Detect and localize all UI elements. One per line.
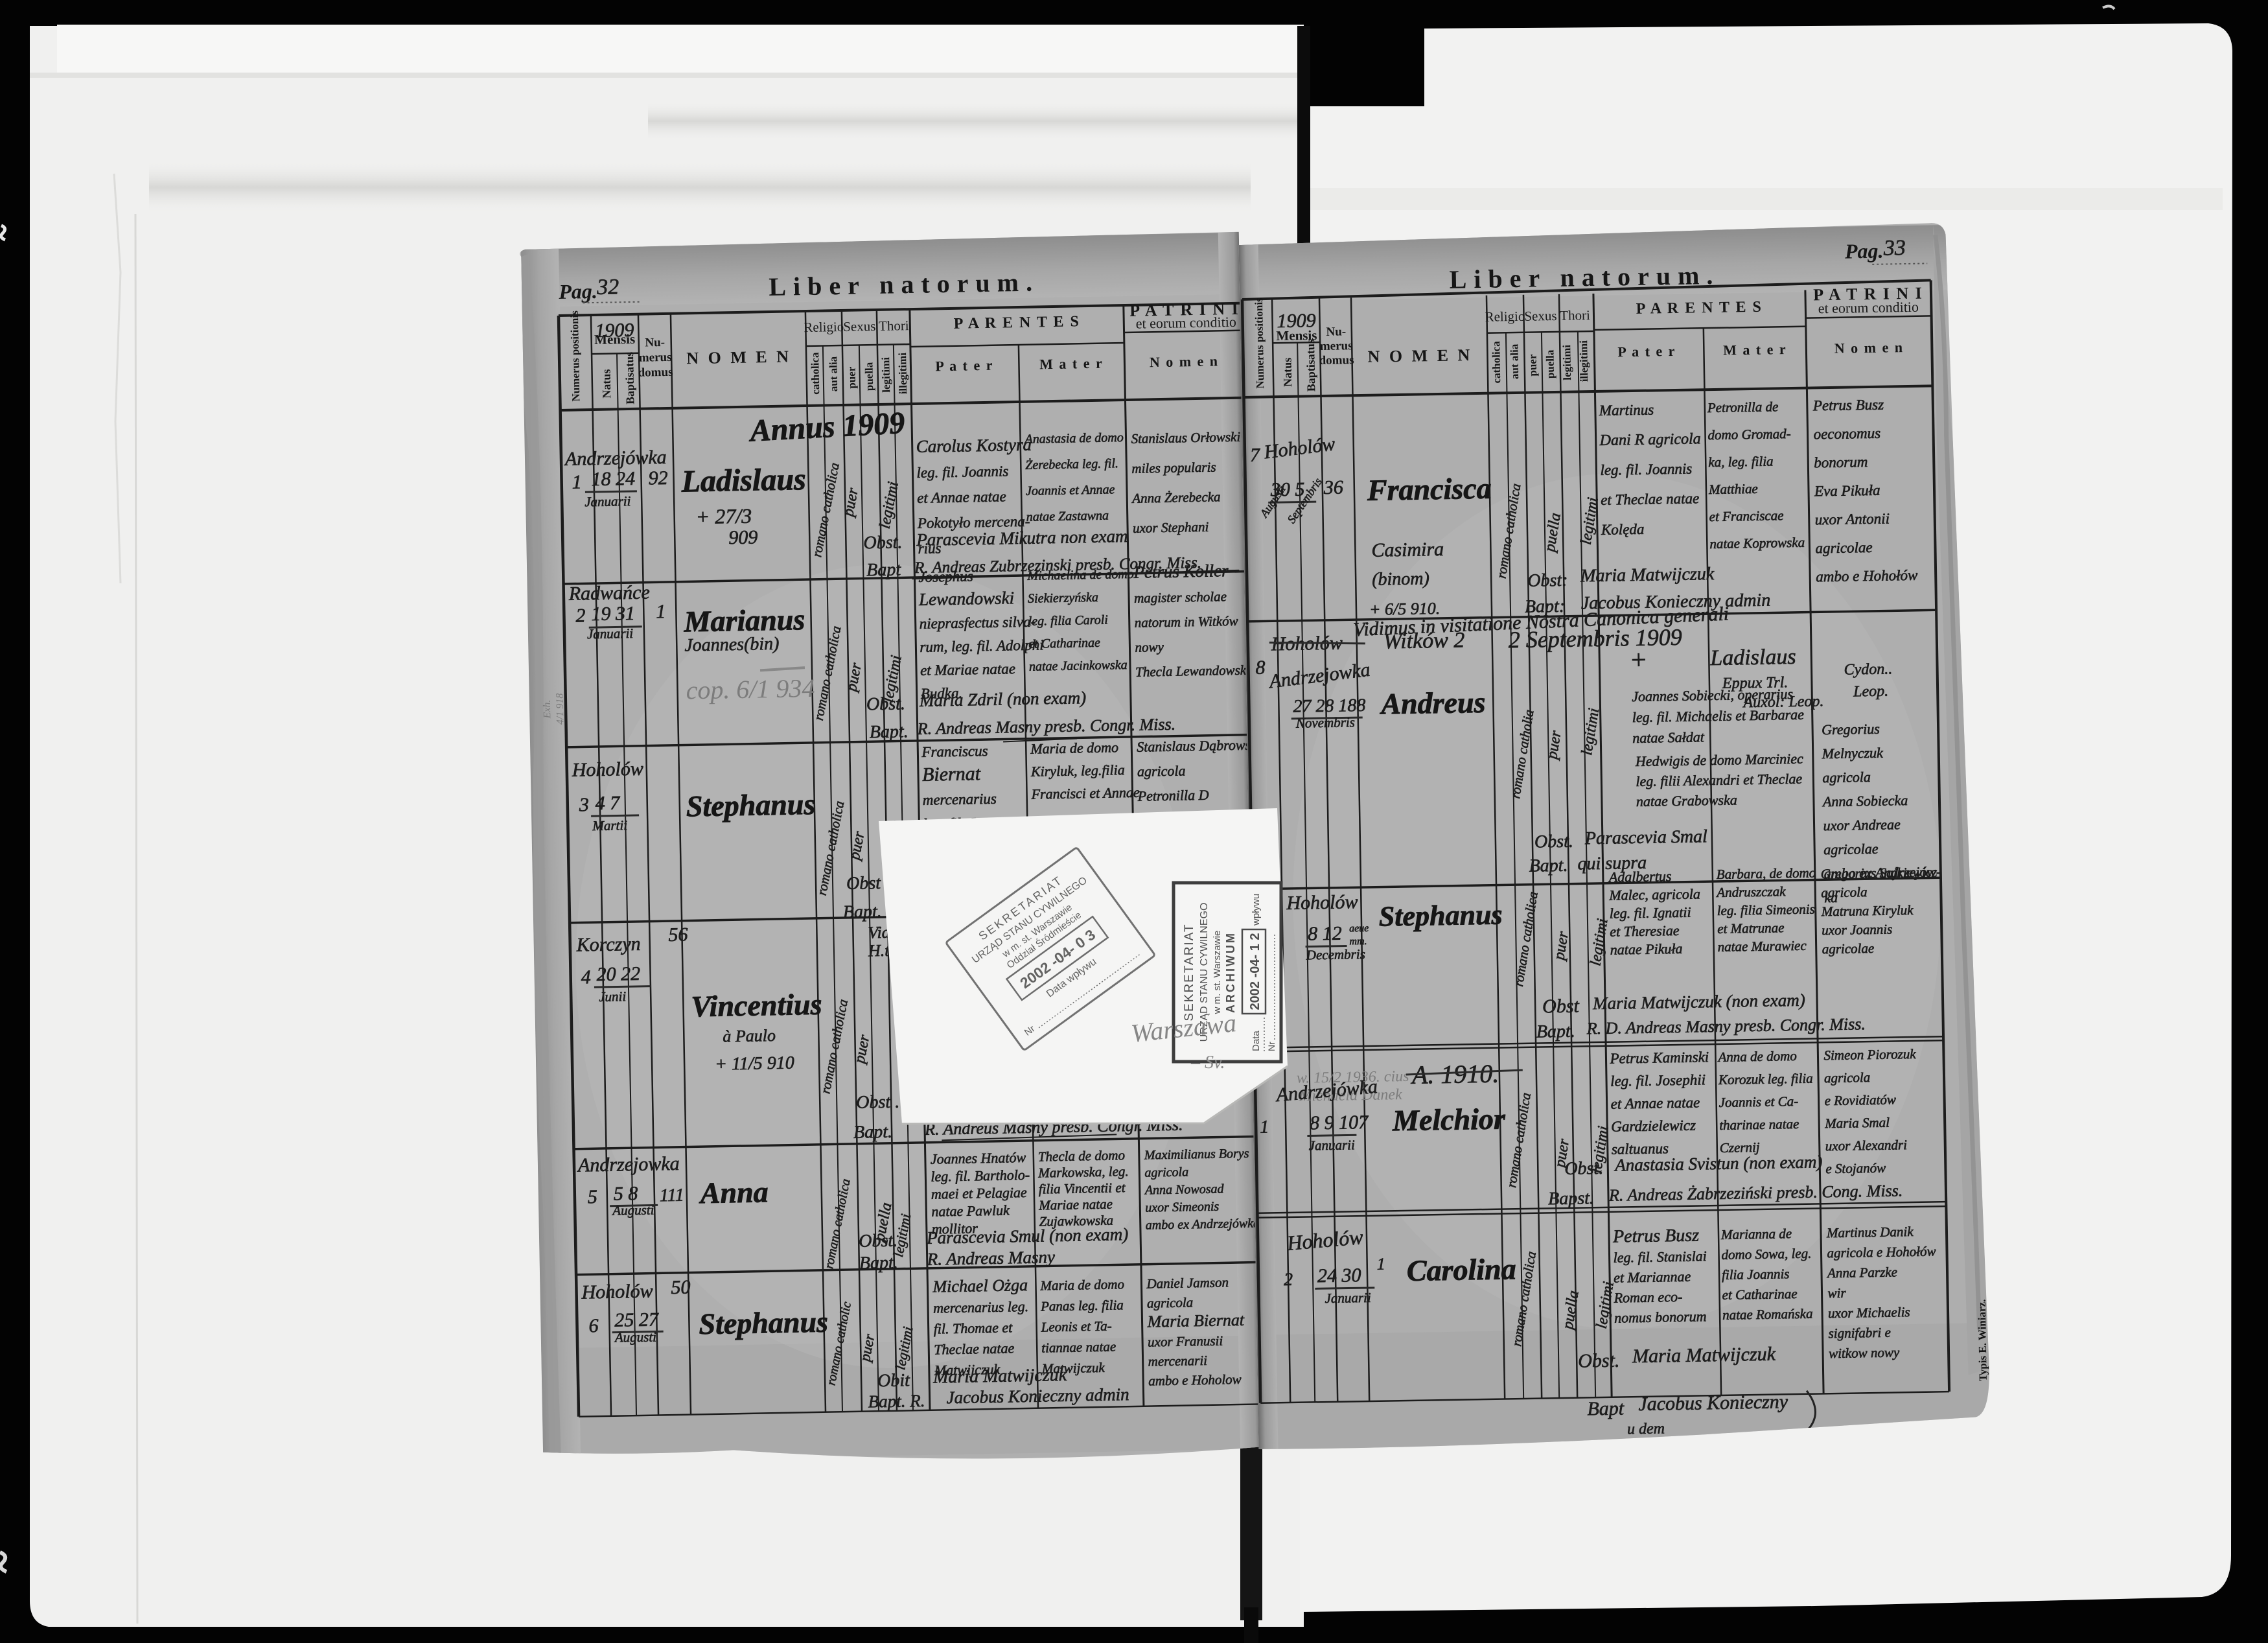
svg-text:ambo e Hohołów: ambo e Hohołów: [1816, 567, 1918, 585]
svg-text:Leop.: Leop.: [1853, 683, 1888, 701]
svg-text:domo Sowa, leg.: domo Sowa, leg.: [1721, 1246, 1811, 1263]
svg-text:Hedwigis de domo Marciniec: Hedwigis de domo Marciniec: [1635, 751, 1803, 769]
svg-text:Junii: Junii: [599, 988, 627, 1005]
svg-text:agricolae: agricolae: [1823, 841, 1879, 857]
svg-text:Maria Matwijczuk: Maria Matwijczuk: [1580, 564, 1715, 586]
svg-text:leg. fil. Michaelis et Barbara: leg. fil. Michaelis et Barbarae: [1632, 706, 1805, 725]
svg-text:56: 56: [668, 924, 688, 946]
svg-text:Anastasia Svistun (non exam): Anastasia Svistun (non exam): [1614, 1152, 1823, 1174]
svg-text:Bapt.: Bapt.: [1529, 856, 1568, 876]
svg-text:Numerus positionis: Numerus positionis: [568, 310, 583, 402]
svg-text:Maria Matwijczuk: Maria Matwijczuk: [1632, 1344, 1776, 1368]
svg-text:Nr: Nr: [1266, 1042, 1277, 1051]
svg-text:Theclae natae: Theclae natae: [934, 1340, 1015, 1357]
svg-text:puer: puer: [1526, 354, 1539, 377]
svg-text:leg. fil. Joannis: leg. fil. Joannis: [916, 463, 1008, 481]
svg-text:Witków 2: Witków 2: [1383, 628, 1464, 653]
svg-text:aut alia: aut alia: [827, 356, 840, 391]
svg-text:N o m e n: N o m e n: [1834, 339, 1904, 356]
svg-text:Żerebecka leg. fil.: Żerebecka leg. fil.: [1025, 456, 1118, 472]
svg-text:Petrus Koller: Petrus Koller: [1133, 561, 1229, 582]
svg-text:Novembris: Novembris: [1295, 714, 1355, 731]
svg-text:u dem: u dem: [1627, 1420, 1665, 1438]
svg-text:2002 -04- 1 2: 2002 -04- 1 2: [1248, 933, 1262, 1010]
svg-text:miles popularis: miles popularis: [1131, 459, 1216, 476]
svg-text:et Theclae natae: et Theclae natae: [1601, 490, 1699, 508]
svg-text:Joannes Sobiecki, operarius: Joannes Sobiecki, operarius: [1632, 686, 1793, 705]
svg-text:M a t e r: M a t e r: [1723, 341, 1787, 358]
svg-text:32: 32: [596, 275, 619, 299]
svg-text:Dani R agricola: Dani R agricola: [1599, 430, 1700, 449]
svg-text:+: +: [1629, 646, 1648, 675]
svg-text:ARCHIWUM: ARCHIWUM: [1224, 931, 1237, 1013]
svg-text:Januarii: Januarii: [1308, 1137, 1355, 1153]
svg-text:natae Romańska: natae Romańska: [1722, 1306, 1813, 1323]
svg-text:(binom): (binom): [1372, 568, 1429, 589]
svg-text:50: 50: [671, 1277, 691, 1299]
svg-text:legitimi: legitimi: [1560, 345, 1573, 380]
svg-text:Martinus Danik: Martinus Danik: [1826, 1224, 1914, 1241]
svg-text:e Stojanów: e Stojanów: [1825, 1160, 1886, 1177]
svg-text:natae Zastawna: natae Zastawna: [1026, 508, 1109, 524]
svg-text:Bapt: Bapt: [1587, 1397, 1625, 1419]
svg-text:Nu-: Nu-: [645, 336, 665, 350]
svg-text:et Annae natae: et Annae natae: [1610, 1094, 1700, 1112]
svg-text:Numerus positionis: Numerus positionis: [1253, 297, 1266, 389]
svg-text:ambo e Hoholow: ambo e Hoholow: [1148, 1371, 1242, 1389]
svg-text:leg. filia Simeonis: leg. filia Simeonis: [1717, 901, 1815, 918]
svg-text:catholica: catholica: [809, 352, 822, 395]
svg-text:illegitimi: illegitimi: [1577, 340, 1590, 382]
svg-text:111: 111: [660, 1185, 684, 1206]
svg-text:Stanislaus Orłowski: Stanislaus Orłowski: [1131, 429, 1240, 447]
svg-text:agricolae: agricolae: [1815, 539, 1873, 556]
svg-text:M a t e r: M a t e r: [1039, 355, 1104, 373]
svg-text:puer: puer: [845, 366, 858, 389]
svg-text:mercenarii: mercenarii: [1148, 1353, 1207, 1369]
svg-text:Andruszczak: Andruszczak: [1715, 883, 1786, 900]
svg-text:Stephanus: Stephanus: [699, 1305, 828, 1341]
svg-text:et Mariae natae: et Mariae natae: [920, 660, 1015, 679]
svg-text:Mariae natae: Mariae natae: [1038, 1196, 1113, 1213]
svg-text:nieprasfectus silva-: nieprasfectus silva-: [920, 614, 1036, 632]
svg-text:Simeon Piorozuk: Simeon Piorozuk: [1823, 1046, 1916, 1063]
svg-text:19 31: 19 31: [591, 603, 635, 625]
svg-text:Anna Parzke: Anna Parzke: [1826, 1264, 1897, 1281]
svg-text:oeconomus: oeconomus: [1813, 425, 1880, 443]
svg-text:Sexus: Sexus: [843, 318, 876, 334]
svg-text:Joannis et Ca-: Joannis et Ca-: [1718, 1093, 1798, 1110]
svg-text:Radwańce: Radwańce: [568, 581, 651, 604]
svg-text:Decembris: Decembris: [1306, 946, 1365, 963]
svg-text:Obst.: Obst.: [1564, 1158, 1603, 1179]
svg-text:magister scholae: magister scholae: [1134, 588, 1227, 606]
svg-text:4: 4: [581, 966, 591, 988]
svg-text:Jacobus Konieczny: Jacobus Konieczny: [1638, 1391, 1788, 1415]
svg-text:Januarii: Januarii: [1325, 1290, 1371, 1306]
svg-text:Obit: Obit: [877, 1370, 911, 1391]
svg-text:agricola: agricola: [1822, 769, 1871, 786]
svg-text:R. Andreas Masny: R. Andreas Masny: [926, 1247, 1055, 1269]
svg-text:+ 11/5 910: + 11/5 910: [715, 1053, 794, 1075]
svg-text:Anastasia de domo: Anastasia de domo: [1023, 430, 1124, 447]
svg-text:Augusti: Augusti: [614, 1329, 657, 1345]
svg-text:P a t e r: P a t e r: [1617, 343, 1676, 360]
svg-text:Maximilianus Borys: Maximilianus Borys: [1144, 1147, 1249, 1163]
svg-text:Thecla de domo: Thecla de domo: [1038, 1147, 1126, 1164]
svg-text:natae Koprowska: natae Koprowska: [1709, 535, 1805, 552]
svg-text:Hoholów: Hoholów: [571, 758, 643, 781]
svg-text:Korczyn: Korczyn: [575, 933, 640, 956]
svg-text:domus: domus: [638, 366, 673, 380]
svg-text:Hoholów: Hoholów: [1286, 891, 1358, 914]
svg-text:Religio: Religio: [804, 319, 844, 335]
svg-text:4/1 918: 4/1 918: [555, 693, 566, 725]
svg-text:Exh.: Exh.: [542, 699, 553, 719]
svg-text:cop. 6/1 934: cop. 6/1 934: [686, 673, 815, 705]
svg-text:Maria de domo: Maria de domo: [1039, 1276, 1124, 1293]
svg-text:leg. fil. Joannis: leg. fil. Joannis: [1600, 461, 1692, 478]
svg-text:P A R E N T E S: P A R E N T E S: [953, 313, 1080, 332]
svg-text:Francisci et Annae: Francisci et Annae: [1030, 784, 1140, 802]
svg-text:Obst.: Obst.: [863, 532, 902, 553]
svg-text:Matthiae: Matthiae: [1708, 481, 1758, 497]
svg-text:36: 36: [1323, 476, 1344, 498]
svg-text:2: 2: [1284, 1270, 1293, 1290]
svg-text:Matruna Kiryluk: Matruna Kiryluk: [1821, 902, 1914, 919]
svg-text:maei et Pelagiae: maei et Pelagiae: [931, 1184, 1028, 1202]
svg-text:Joannes(bin): Joannes(bin): [684, 634, 780, 656]
svg-text:Petrus Busz: Petrus Busz: [1812, 397, 1884, 414]
svg-text:Andreus: Andreus: [1379, 686, 1486, 721]
svg-text:P A R E N T E S: P A R E N T E S: [1636, 299, 1763, 318]
svg-text:Bapst.: Bapst.: [1548, 1188, 1594, 1209]
svg-text:Michael Ożga: Michael Ożga: [932, 1276, 1028, 1296]
svg-text:Obst.: Obst.: [859, 1231, 897, 1252]
svg-text:Carolina: Carolina: [1406, 1252, 1516, 1287]
svg-text:leg. fil. Josephii: leg. fil. Josephii: [1610, 1071, 1706, 1089]
svg-text:natae Pikuła: natae Pikuła: [1610, 940, 1683, 958]
svg-text:Gregorius: Gregorius: [1822, 721, 1880, 738]
svg-text:Maria Biernat: Maria Biernat: [1146, 1311, 1245, 1331]
svg-text:Andrzejówka: Andrzejówka: [564, 447, 667, 470]
svg-text:leg. filii Alexandri et Thecla: leg. filii Alexandri et Theclae: [1636, 771, 1802, 789]
svg-text:tharinae natae: tharinae natae: [1719, 1116, 1799, 1133]
svg-text:Melnyczuk: Melnyczuk: [1822, 745, 1884, 762]
svg-text:agricola: agricola: [1147, 1294, 1194, 1311]
svg-text:– Sv.: – Sv.: [1190, 1053, 1225, 1073]
svg-text:witkow nowy: witkow nowy: [1829, 1344, 1900, 1361]
svg-text:Bapt.: Bapt.: [859, 1253, 898, 1274]
svg-text:8: 8: [1255, 657, 1266, 678]
svg-text:20 22: 20 22: [596, 963, 640, 985]
svg-text:w m. st. Warszawie: w m. st. Warszawie: [1212, 931, 1223, 1015]
svg-text:illegitimi: illegitimi: [896, 353, 909, 395]
svg-text:Vincentius: Vincentius: [691, 988, 822, 1023]
svg-text:natae Sałdat: natae Sałdat: [1632, 728, 1705, 746]
svg-text:et Mariannae: et Mariannae: [1614, 1268, 1691, 1286]
svg-text:2: 2: [575, 605, 586, 626]
svg-text:Thecla Lewandowska: Thecla Lewandowska: [1135, 662, 1253, 679]
svg-text:Ladislaus: Ladislaus: [680, 462, 806, 499]
svg-text:Obst:: Obst:: [1527, 570, 1568, 591]
svg-text:Bapt.: Bapt.: [853, 1122, 892, 1143]
svg-text:natorum in Witków: natorum in Witków: [1135, 613, 1238, 631]
svg-text:Casimira: Casimira: [1371, 539, 1444, 561]
svg-text:signifabri e: signifabri e: [1828, 1325, 1891, 1342]
svg-text:Marianna de: Marianna de: [1720, 1226, 1792, 1242]
svg-text:Parascevia Smul (non exam): Parascevia Smul (non exam): [926, 1224, 1129, 1248]
svg-text:Joannis et Annae: Joannis et Annae: [1026, 482, 1115, 498]
svg-text:Obst.: Obst.: [1578, 1350, 1620, 1372]
svg-text:et Catharinae: et Catharinae: [1028, 636, 1100, 651]
svg-text:uxor Antonii: uxor Antonii: [1815, 510, 1890, 528]
svg-text:wpływu: wpływu: [1251, 894, 1262, 926]
svg-text:Januarii: Januarii: [587, 625, 634, 642]
svg-text:Maria Matwijczuk (non exam): Maria Matwijczuk (non exam): [1592, 990, 1805, 1013]
svg-text:Natus: Natus: [1281, 358, 1295, 387]
svg-text:Franciscus: Franciscus: [921, 743, 988, 760]
svg-text:Thori: Thori: [879, 318, 909, 334]
svg-text:et eorum conditio: et eorum conditio: [1818, 299, 1919, 317]
svg-text:Kolęda: Kolęda: [1601, 521, 1645, 538]
svg-text:aeue: aeue: [1349, 923, 1369, 934]
svg-text:Andrzejowka: Andrzejowka: [577, 1153, 680, 1176]
svg-text:leg. fil. Bartholo-: leg. fil. Bartholo-: [931, 1167, 1030, 1185]
svg-text:domus: domus: [1319, 353, 1354, 367]
svg-text:Michaelina de domo: Michaelina de domo: [1026, 567, 1134, 583]
svg-text:wir: wir: [1827, 1285, 1846, 1301]
svg-text:Eva Pikuła: Eva Pikuła: [1814, 482, 1880, 500]
svg-text:Leonis et Ta-: Leonis et Ta-: [1040, 1318, 1111, 1335]
svg-text:Data: Data: [1251, 1031, 1262, 1051]
svg-text:uxor Stephani: uxor Stephani: [1133, 519, 1209, 536]
svg-text:Lewandowski: Lewandowski: [918, 588, 1015, 609]
svg-text:catholica: catholica: [1490, 341, 1503, 384]
svg-text:Anna Sobiecka: Anna Sobiecka: [1822, 792, 1908, 810]
svg-text:Martii: Martii: [592, 817, 627, 833]
svg-text:Barbara, de domo: Barbara, de domo: [1717, 865, 1816, 882]
svg-text:1: 1: [656, 601, 666, 622]
svg-text:filia Joannis: filia Joannis: [1722, 1266, 1790, 1283]
svg-text:Liber natorum.: Liber natorum.: [769, 267, 1039, 301]
svg-text:Religio: Religio: [1485, 309, 1525, 325]
svg-text:Parascevia Smal: Parascevia Smal: [1584, 826, 1708, 848]
svg-text:mm.: mm.: [1349, 936, 1367, 947]
svg-text:+ 27/3: + 27/3: [695, 504, 752, 529]
svg-text:Markowska, leg.: Markowska, leg.: [1037, 1163, 1129, 1181]
svg-text:Mensis: Mensis: [594, 331, 635, 347]
svg-text:Anna Nowosad: Anna Nowosad: [1144, 1182, 1225, 1197]
svg-text:N o m e n: N o m e n: [1150, 353, 1220, 370]
svg-text:agricola: agricola: [1137, 762, 1186, 779]
svg-text:92: 92: [648, 467, 668, 489]
svg-text:909: 909: [728, 526, 758, 548]
svg-text:Stephanus: Stephanus: [1378, 898, 1503, 932]
svg-text:P a t e r: P a t e r: [935, 357, 994, 375]
svg-text:2 Septembris 1909: 2 Septembris 1909: [1508, 624, 1682, 653]
svg-text:7: 7: [1250, 445, 1262, 466]
svg-text:Marianus: Marianus: [683, 603, 805, 638]
svg-text:Carolus Kostyra: Carolus Kostyra: [916, 435, 1032, 456]
svg-text:ambo ex Andrzejówka: ambo ex Andrzejówka: [1146, 1216, 1260, 1232]
svg-text:Thori: Thori: [1560, 307, 1590, 323]
svg-text:Baptisatus: Baptisatus: [1304, 339, 1317, 391]
svg-text:Siekierzyńska: Siekierzyńska: [1028, 590, 1098, 606]
svg-text:agricola e Hohołów: agricola e Hohołów: [1827, 1243, 1936, 1261]
svg-text:Anna Żerebecka: Anna Żerebecka: [1131, 489, 1221, 506]
svg-text:agricola: agricola: [1144, 1165, 1188, 1180]
svg-text:natae Pawluk: natae Pawluk: [931, 1202, 1010, 1219]
svg-text:Maria Matwijczuk: Maria Matwijczuk: [932, 1365, 1067, 1388]
svg-text:18 24: 18 24: [591, 468, 635, 490]
svg-text:Maria Smal: Maria Smal: [1824, 1115, 1890, 1132]
svg-text:1: 1: [1260, 1117, 1269, 1137]
svg-text:Cydon..: Cydon..: [1844, 660, 1892, 678]
svg-text:Obst: Obst: [1542, 996, 1580, 1018]
svg-text:Gardzielewicz: Gardzielewicz: [1611, 1117, 1696, 1135]
svg-text:Natus: Natus: [599, 369, 613, 398]
svg-text:Maria Zdril (non exam): Maria Zdril (non exam): [919, 688, 1087, 710]
svg-text:Bapt.: Bapt.: [870, 721, 908, 742]
svg-text:8 9 107: 8 9 107: [1310, 1112, 1370, 1134]
svg-text:agricolae: agricolae: [1822, 940, 1875, 957]
svg-text:natae Murawiec: natae Murawiec: [1717, 938, 1807, 955]
svg-text:Obst .: Obst .: [856, 1092, 899, 1113]
svg-text:bonorum: bonorum: [1814, 454, 1868, 471]
svg-text:à Paulo: à Paulo: [723, 1026, 776, 1045]
svg-text:Ladislaus: Ladislaus: [1709, 645, 1796, 670]
svg-text:Petronilla D: Petronilla D: [1137, 787, 1209, 804]
svg-text:33: 33: [1883, 236, 1906, 261]
svg-text:aut alia: aut alia: [1508, 344, 1521, 379]
svg-text:Panas leg. filia: Panas leg. filia: [1040, 1297, 1124, 1314]
svg-text:domo Gromad-: domo Gromad-: [1707, 426, 1791, 443]
svg-text:uxor Joannis: uxor Joannis: [1822, 922, 1892, 938]
svg-text:Sexus: Sexus: [1524, 308, 1557, 324]
svg-text:Adalbertus: Adalbertus: [1608, 868, 1672, 885]
svg-text:tiannae natae: tiannae natae: [1041, 1339, 1116, 1356]
svg-text:natae Grabowska: natae Grabowska: [1636, 791, 1737, 810]
svg-text:Martinus: Martinus: [1599, 401, 1654, 418]
svg-text:puella: puella: [1544, 349, 1556, 379]
svg-text:5: 5: [588, 1186, 598, 1207]
svg-text:Baptisatus: Baptisatus: [623, 352, 636, 404]
svg-text:6: 6: [588, 1315, 599, 1336]
svg-text:Petrus Kaminski: Petrus Kaminski: [1609, 1049, 1709, 1067]
svg-text:Parascevia Mikutra non exam: Parascevia Mikutra non exam: [916, 526, 1128, 550]
svg-text:leg. filia Caroli: leg. filia Caroli: [1028, 613, 1109, 629]
svg-text:1: 1: [1376, 1255, 1385, 1274]
svg-text:25 27: 25 27: [614, 1309, 660, 1331]
svg-text:24 30: 24 30: [1317, 1264, 1361, 1287]
svg-text:Biernat: Biernat: [922, 763, 981, 786]
svg-text:8 12: 8 12: [1308, 923, 1342, 945]
svg-text:et Theresiae: et Theresiae: [1610, 922, 1680, 940]
svg-text:N O M E N: N O M E N: [686, 347, 791, 367]
svg-text:uxor Franusii: uxor Franusii: [1148, 1333, 1223, 1349]
svg-text:nowy: nowy: [1135, 639, 1164, 655]
svg-text:natae Jacinkowska: natae Jacinkowska: [1029, 658, 1128, 674]
svg-text:SEKRETARIAT: SEKRETARIAT: [1183, 923, 1196, 1021]
svg-text:Stanislaus Dąbrowski: Stanislaus Dąbrowski: [1137, 736, 1261, 755]
svg-text:Bapt: Bapt: [866, 559, 902, 580]
svg-text:Pag.: Pag.: [558, 279, 597, 303]
svg-text:Gregorius Sajkiewicz: Gregorius Sajkiewicz: [1821, 864, 1938, 881]
svg-text:N O M E N: N O M E N: [1367, 345, 1472, 366]
svg-text:et Matrunae: et Matrunae: [1717, 920, 1785, 937]
svg-text:H.t: H.t: [868, 941, 890, 961]
svg-text:et Annae natae: et Annae natae: [917, 488, 1006, 506]
svg-text:Petronilla de: Petronilla de: [1707, 399, 1779, 415]
svg-text:uxor Michaelis: uxor Michaelis: [1828, 1304, 1910, 1321]
svg-text:Bapt. R.: Bapt. R.: [868, 1391, 925, 1412]
svg-text:Anna de domo: Anna de domo: [1717, 1048, 1797, 1065]
svg-text:27 28 188: 27 28 188: [1293, 695, 1365, 717]
svg-text:ka, leg. filia: ka, leg. filia: [1708, 453, 1774, 470]
svg-text:Kiryluk, leg.filia: Kiryluk, leg.filia: [1030, 762, 1125, 780]
svg-text:filia Vincentii et: filia Vincentii et: [1039, 1180, 1126, 1196]
svg-text:Jacobus Konieczny admin: Jacobus Konieczny admin: [946, 1384, 1129, 1407]
svg-text:leg. fil. Ignatii: leg. fil. Ignatii: [1610, 904, 1691, 922]
svg-text:e Rovidiatów: e Rovidiatów: [1824, 1091, 1896, 1108]
svg-text:uxor Alexandri: uxor Alexandri: [1825, 1137, 1908, 1154]
svg-text:Pag.: Pag.: [1844, 239, 1884, 263]
svg-text:uxor Simeonis: uxor Simeonis: [1145, 1200, 1219, 1215]
svg-text:Josephus: Josephus: [918, 568, 973, 585]
svg-text:1: 1: [572, 471, 582, 493]
svg-text:Stephanus: Stephanus: [686, 787, 815, 823]
svg-text:Malec, agricola: Malec, agricola: [1608, 885, 1700, 903]
svg-text:merus: merus: [1320, 339, 1353, 353]
svg-text:Anna: Anna: [698, 1175, 769, 1209]
svg-text:Petrus Busz: Petrus Busz: [1612, 1226, 1700, 1247]
svg-text:et eorum conditio: et eorum conditio: [1135, 314, 1236, 332]
svg-text:Roman eco-: Roman eco-: [1613, 1288, 1682, 1306]
svg-text:fil. Thomae et: fil. Thomae et: [933, 1319, 1013, 1336]
svg-text:agricola: agricola: [1824, 1069, 1871, 1086]
svg-text:Bapt.: Bapt.: [1536, 1021, 1575, 1042]
svg-text:nomus bonorum: nomus bonorum: [1614, 1308, 1707, 1325]
svg-text:3: 3: [578, 794, 589, 815]
svg-text:Obst.: Obst.: [866, 693, 905, 714]
svg-text:mercenarius leg.: mercenarius leg.: [933, 1298, 1028, 1316]
svg-text:et Catharinae: et Catharinae: [1722, 1286, 1797, 1303]
svg-text:4 7: 4 7: [595, 792, 621, 814]
svg-text:Augusti: Augusti: [611, 1202, 654, 1218]
svg-text:Maria de domo: Maria de domo: [1030, 739, 1118, 757]
svg-text:uxor Andreae: uxor Andreae: [1823, 816, 1901, 833]
svg-text:mercenarius: mercenarius: [923, 791, 997, 808]
svg-text:Liber natorum.: Liber natorum.: [1449, 261, 1720, 294]
svg-text:et Franciscae: et Franciscae: [1709, 507, 1783, 524]
svg-text:Nu-: Nu-: [1326, 325, 1346, 339]
svg-text:Obst.: Obst.: [1534, 832, 1573, 852]
svg-text:puella: puella: [862, 362, 875, 391]
svg-text:Korozuk leg. filia: Korozuk leg. filia: [1718, 1071, 1813, 1088]
svg-text:legitimi: legitimi: [879, 357, 892, 393]
svg-text:rum, leg. fil. Adolphi: rum, leg. fil. Adolphi: [920, 636, 1044, 655]
svg-text:merus: merus: [639, 351, 672, 365]
svg-text:Januarii: Januarii: [584, 493, 631, 509]
svg-text:Hoholów: Hoholów: [581, 1281, 653, 1303]
svg-text:Melchior: Melchior: [1392, 1102, 1507, 1137]
svg-text:5 8: 5 8: [613, 1183, 638, 1205]
svg-text:agricola: agricola: [1821, 884, 1868, 900]
svg-text:Daniel Jamson: Daniel Jamson: [1146, 1274, 1229, 1291]
svg-text:Joannes Hnatów: Joannes Hnatów: [931, 1149, 1026, 1167]
svg-text:leg. fil. Stanislai: leg. fil. Stanislai: [1613, 1248, 1707, 1265]
